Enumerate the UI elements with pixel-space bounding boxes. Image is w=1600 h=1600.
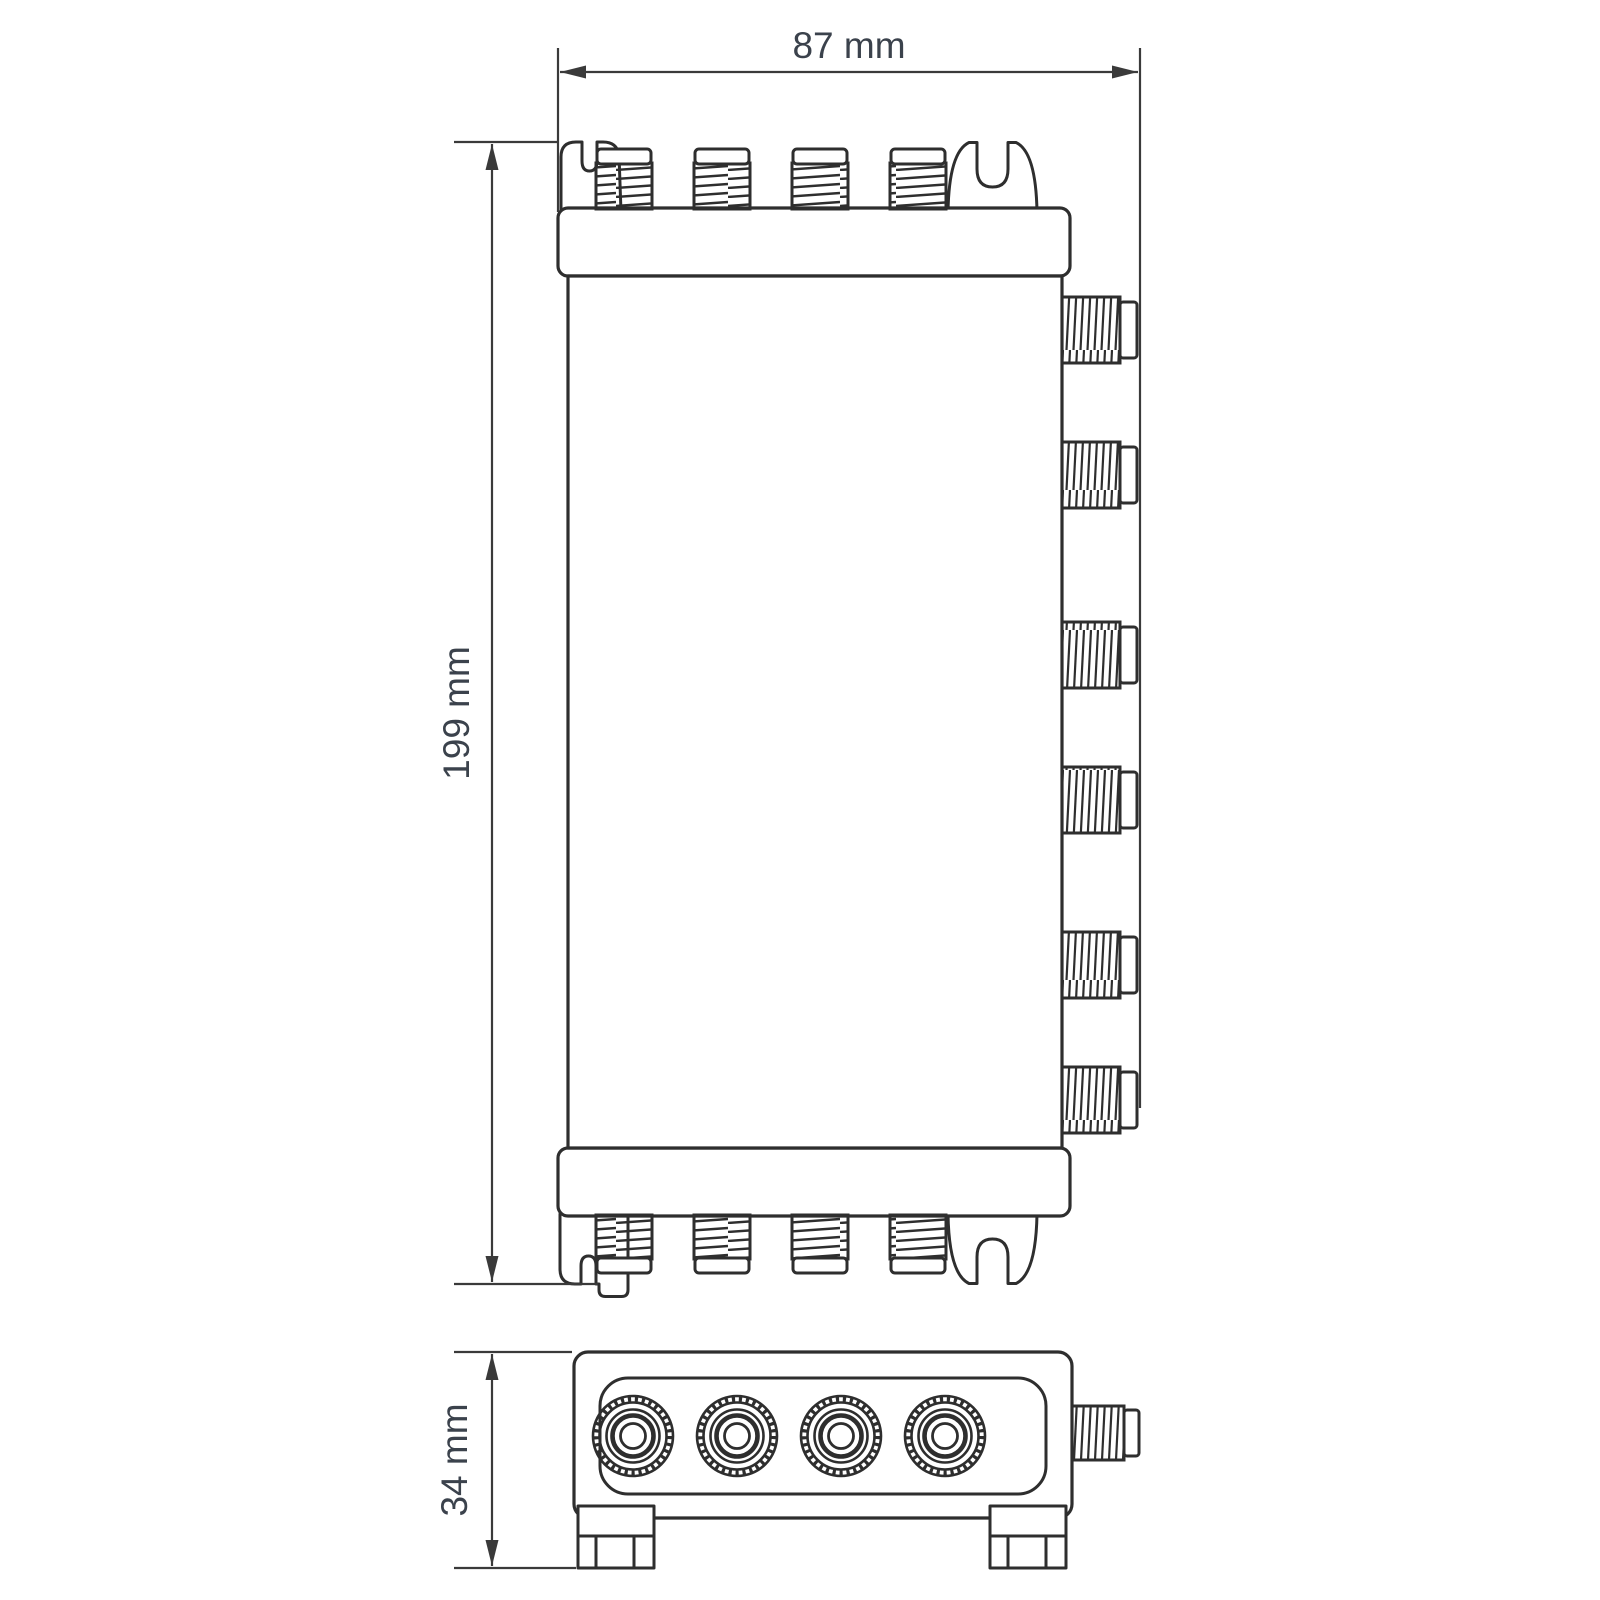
dimension-height-label: 199 mm xyxy=(436,646,477,780)
f-connector-top-1 xyxy=(596,149,652,209)
connector-thread xyxy=(596,1215,652,1259)
connector-cap xyxy=(793,1258,847,1273)
connector-cap xyxy=(1120,1072,1137,1128)
connector-thread xyxy=(1062,1067,1120,1133)
dimension-depth-label: 34 mm xyxy=(434,1403,475,1516)
connector-cap xyxy=(793,149,847,164)
f-connector-top-4 xyxy=(890,149,946,209)
connector-thread xyxy=(1062,442,1120,508)
arrowhead-top xyxy=(486,1354,499,1380)
connector-thread xyxy=(890,163,946,209)
connector-cap xyxy=(891,149,945,164)
f-connector-side-4 xyxy=(1062,767,1137,833)
arrowhead-right xyxy=(1112,66,1138,79)
connector-thread xyxy=(890,1215,946,1259)
connector-thread xyxy=(596,163,652,209)
foot-upper-block xyxy=(578,1506,654,1536)
connector-cap xyxy=(1120,447,1137,503)
connector-cap xyxy=(1124,1410,1139,1456)
f-connector-side-1 xyxy=(1062,297,1137,363)
foot-lower-block xyxy=(578,1536,654,1568)
foot-upper-block xyxy=(990,1506,1066,1536)
connector-thread xyxy=(1062,297,1120,363)
connector-thread xyxy=(1072,1406,1124,1460)
f-connector-bottom-1 xyxy=(596,1215,652,1273)
technical-drawing: 87 mm 199 mm 34 mm xyxy=(0,0,1600,1600)
connector-thread xyxy=(1062,767,1120,833)
connector-cap xyxy=(1120,772,1137,828)
connector-thread xyxy=(1062,622,1120,688)
arrowhead-bottom xyxy=(486,1540,499,1566)
f-connector-bottom-3 xyxy=(792,1215,848,1273)
top-end-cap xyxy=(558,208,1070,276)
mounting-tab-bottom-right xyxy=(948,1214,1037,1284)
connector-cap xyxy=(597,1258,651,1273)
f-connector-bottom-4 xyxy=(890,1215,946,1273)
f-connector-top-2 xyxy=(694,149,750,209)
connector-cap xyxy=(695,1258,749,1273)
mounting-tab-top-right xyxy=(948,143,1037,213)
connector-thread xyxy=(694,1215,750,1259)
arrowhead-left xyxy=(560,66,586,79)
connector-cap xyxy=(1120,627,1137,683)
mounting-foot-right xyxy=(990,1506,1066,1568)
f-connector-top-3 xyxy=(792,149,848,209)
foot-lower-block xyxy=(990,1536,1066,1568)
f-connector-side-bottom-view xyxy=(1072,1406,1139,1460)
connector-cap xyxy=(597,149,651,164)
f-connector-side-3 xyxy=(1062,622,1137,688)
f-connector-side-6 xyxy=(1062,1067,1137,1133)
arrowhead-bottom xyxy=(486,1256,499,1282)
f-connector-side-2 xyxy=(1062,442,1137,508)
connector-thread xyxy=(792,1215,848,1259)
dimension-width-label: 87 mm xyxy=(792,25,905,66)
connector-thread xyxy=(792,163,848,209)
drawing-canvas: 87 mm 199 mm 34 mm xyxy=(0,0,1600,1600)
f-connector-bottom-2 xyxy=(694,1215,750,1273)
connector-cap xyxy=(1120,302,1137,358)
housing-body xyxy=(568,276,1062,1148)
connector-thread xyxy=(694,163,750,209)
connector-cap xyxy=(1120,937,1137,993)
dimension-depth: 34 mm xyxy=(434,1352,576,1568)
connector-thread xyxy=(1062,932,1120,998)
arrowhead-top xyxy=(486,144,499,170)
bottom-end-cap xyxy=(558,1148,1070,1216)
connector-cap xyxy=(695,149,749,164)
connector-cap xyxy=(891,1258,945,1273)
front-view xyxy=(558,142,1137,1297)
mounting-foot-left xyxy=(578,1506,654,1568)
bottom-view xyxy=(574,1352,1139,1568)
f-connector-side-5 xyxy=(1062,932,1137,998)
